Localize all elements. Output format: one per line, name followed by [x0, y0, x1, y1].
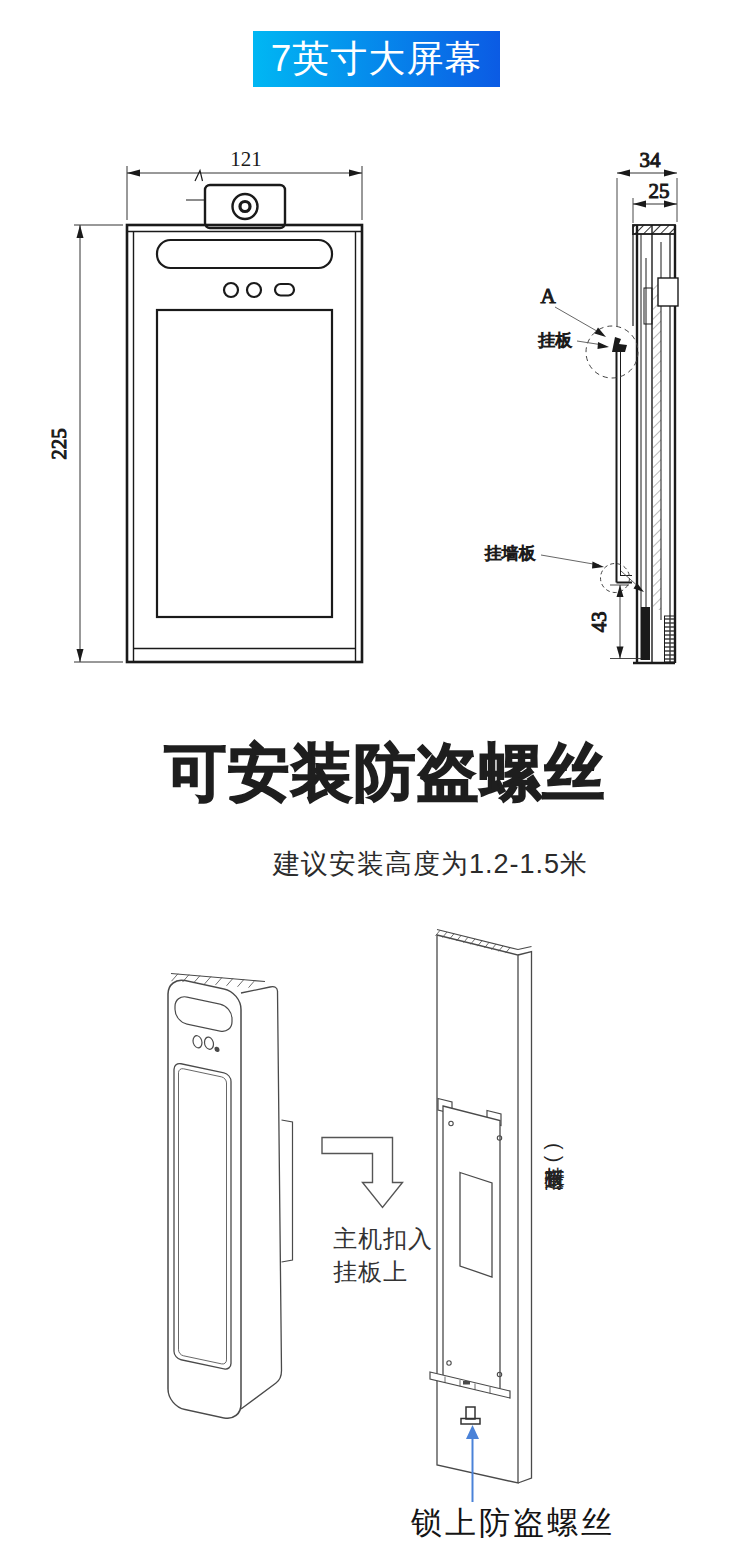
wall-plate-side	[612, 337, 632, 583]
plate-included-note: (挂板有附送)	[542, 1143, 569, 1283]
screen-area	[157, 310, 332, 617]
dim-width-label: 121	[230, 147, 262, 171]
dim-depth-total-label: 34	[640, 148, 662, 172]
speaker-slot-3d	[175, 994, 232, 1033]
camera-pod	[186, 171, 285, 229]
device-body-front	[127, 225, 362, 662]
side-bracket	[282, 1120, 293, 1262]
sensor-dot	[224, 283, 238, 297]
install-step-note: 主机扣入 挂板上	[333, 1222, 433, 1288]
detail-marker-label: A	[540, 284, 556, 308]
bend-arrow-icon	[322, 1138, 403, 1208]
device-body-side	[633, 225, 678, 663]
dimension-drawing-canvas: 121 225	[0, 130, 750, 700]
dim-bottom-offset-label: 43	[587, 612, 611, 633]
install-step-note-line1: 主机扣入	[333, 1222, 433, 1255]
screen-size-banner: 7英寸大屏幕	[253, 31, 500, 87]
dim-height	[74, 225, 123, 662]
screen-size-banner-label: 7英寸大屏幕	[271, 34, 483, 84]
detail-circle-bottom	[601, 564, 630, 593]
lock-screw-note: 锁上防盗螺丝	[411, 1502, 615, 1544]
section-title: 可安装防盗螺丝	[10, 731, 750, 815]
dim-depth-body-label: 25	[649, 179, 670, 203]
hang-plate-label: 挂板	[538, 331, 572, 350]
sensor-pill	[275, 284, 294, 296]
side-view-drawing: 34 25	[485, 148, 679, 663]
front-view-drawing: 121 225	[47, 147, 362, 662]
speaker-slot	[157, 240, 332, 268]
install-step-note-line2: 挂板上	[333, 1255, 433, 1288]
screen-area-3d	[174, 1062, 231, 1370]
product-detail-page: 7英寸大屏幕 121	[0, 0, 750, 1550]
mount-plate-drawing	[430, 930, 532, 1484]
device-3d-drawing	[168, 974, 293, 1422]
section-subtitle: 建议安装高度为1.2-1.5米	[273, 846, 588, 882]
dim-height-label: 225	[47, 428, 71, 460]
wall-plate-label: 挂墙板	[485, 544, 536, 563]
sensor-dot	[247, 283, 261, 297]
